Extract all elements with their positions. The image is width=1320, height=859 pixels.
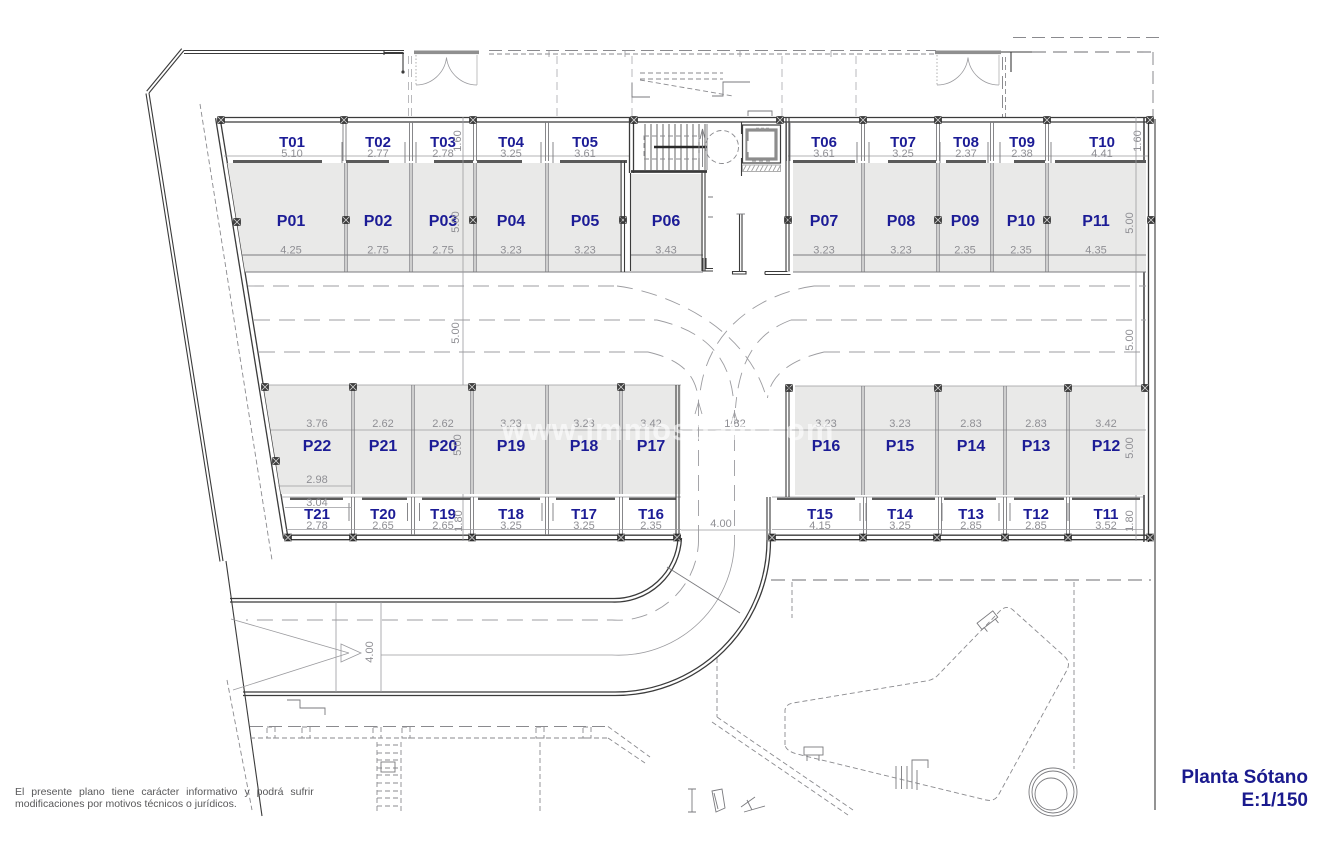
svg-text:3.52: 3.52 bbox=[1095, 520, 1116, 532]
svg-text:2.83: 2.83 bbox=[1025, 418, 1046, 430]
svg-text:2.98: 2.98 bbox=[306, 474, 327, 486]
svg-text:2.75: 2.75 bbox=[432, 245, 453, 257]
svg-text:3.23: 3.23 bbox=[889, 418, 910, 430]
svg-text:2.35: 2.35 bbox=[640, 520, 661, 532]
svg-text:3.25: 3.25 bbox=[573, 520, 594, 532]
svg-text:2.85: 2.85 bbox=[1025, 520, 1046, 532]
svg-text:P05: P05 bbox=[571, 213, 600, 230]
svg-text:P12: P12 bbox=[1092, 438, 1121, 455]
svg-text:modificaciones por motivos téc: modificaciones por motivos técnicos o ju… bbox=[15, 798, 237, 810]
svg-text:3.23: 3.23 bbox=[574, 245, 595, 257]
svg-text:P15: P15 bbox=[886, 438, 915, 455]
svg-text:3.25: 3.25 bbox=[500, 148, 521, 160]
svg-text:4.25: 4.25 bbox=[280, 245, 301, 257]
svg-text:2.62: 2.62 bbox=[432, 418, 453, 430]
svg-text:P09: P09 bbox=[951, 213, 980, 230]
svg-text:2.35: 2.35 bbox=[1010, 245, 1031, 257]
svg-text:2.77: 2.77 bbox=[367, 148, 388, 160]
svg-text:3.23: 3.23 bbox=[500, 245, 521, 257]
svg-text:2.62: 2.62 bbox=[372, 418, 393, 430]
svg-text:P22: P22 bbox=[303, 438, 332, 455]
svg-text:3.25: 3.25 bbox=[889, 520, 910, 532]
svg-text:3.61: 3.61 bbox=[574, 148, 595, 160]
svg-text:5.00: 5.00 bbox=[452, 434, 464, 455]
svg-text:1.80: 1.80 bbox=[1124, 510, 1136, 531]
svg-text:2.65: 2.65 bbox=[372, 520, 393, 532]
svg-text:4.00: 4.00 bbox=[364, 641, 376, 662]
svg-text:P07: P07 bbox=[810, 213, 839, 230]
svg-text:2.38: 2.38 bbox=[1011, 148, 1032, 160]
svg-text:1.60: 1.60 bbox=[1132, 130, 1144, 151]
svg-text:P11: P11 bbox=[1082, 213, 1110, 230]
svg-text:P13: P13 bbox=[1022, 438, 1051, 455]
svg-text:2.78: 2.78 bbox=[432, 148, 453, 160]
svg-text:P04: P04 bbox=[497, 213, 526, 230]
svg-text:2.37: 2.37 bbox=[955, 148, 976, 160]
svg-text:P08: P08 bbox=[887, 213, 916, 230]
svg-text:1.60: 1.60 bbox=[452, 130, 464, 151]
svg-text:3.23: 3.23 bbox=[813, 245, 834, 257]
svg-text:P14: P14 bbox=[957, 438, 986, 455]
svg-text:E:1/150: E:1/150 bbox=[1241, 790, 1308, 811]
svg-text:4.41: 4.41 bbox=[1091, 148, 1112, 160]
svg-text:4.00: 4.00 bbox=[710, 518, 731, 530]
svg-text:5.00: 5.00 bbox=[1124, 212, 1136, 233]
svg-text:2.78: 2.78 bbox=[306, 520, 327, 532]
svg-text:1.80: 1.80 bbox=[453, 510, 465, 531]
svg-text:Planta Sótano: Planta Sótano bbox=[1181, 767, 1308, 788]
svg-text:5.00: 5.00 bbox=[1124, 329, 1136, 350]
svg-text:3.43: 3.43 bbox=[655, 245, 676, 257]
svg-text:2.35: 2.35 bbox=[954, 245, 975, 257]
svg-text:El presente plano tiene caráct: El presente plano tiene carácter informa… bbox=[15, 786, 314, 798]
svg-text:P06: P06 bbox=[652, 213, 681, 230]
svg-text:2.85: 2.85 bbox=[960, 520, 981, 532]
svg-text:5.00: 5.00 bbox=[450, 211, 462, 232]
svg-text:3.25: 3.25 bbox=[500, 520, 521, 532]
svg-text:www.immospain.com: www.immospain.com bbox=[501, 412, 835, 447]
svg-text:2.75: 2.75 bbox=[367, 245, 388, 257]
svg-text:2.65: 2.65 bbox=[432, 520, 453, 532]
svg-text:P01: P01 bbox=[277, 213, 306, 230]
svg-text:3.25: 3.25 bbox=[892, 148, 913, 160]
svg-text:3.61: 3.61 bbox=[813, 148, 834, 160]
svg-text:5.00: 5.00 bbox=[450, 322, 462, 343]
svg-text:3.23: 3.23 bbox=[890, 245, 911, 257]
svg-text:P02: P02 bbox=[364, 213, 393, 230]
svg-text:5.10: 5.10 bbox=[281, 148, 302, 160]
svg-text:4.35: 4.35 bbox=[1085, 245, 1106, 257]
svg-text:2.83: 2.83 bbox=[960, 418, 981, 430]
svg-text:3.76: 3.76 bbox=[306, 418, 327, 430]
svg-text:P10: P10 bbox=[1007, 213, 1036, 230]
svg-text:3.42: 3.42 bbox=[1095, 418, 1116, 430]
svg-text:4.15: 4.15 bbox=[809, 520, 830, 532]
svg-text:5.00: 5.00 bbox=[1124, 437, 1136, 458]
svg-text:P21: P21 bbox=[369, 438, 398, 455]
